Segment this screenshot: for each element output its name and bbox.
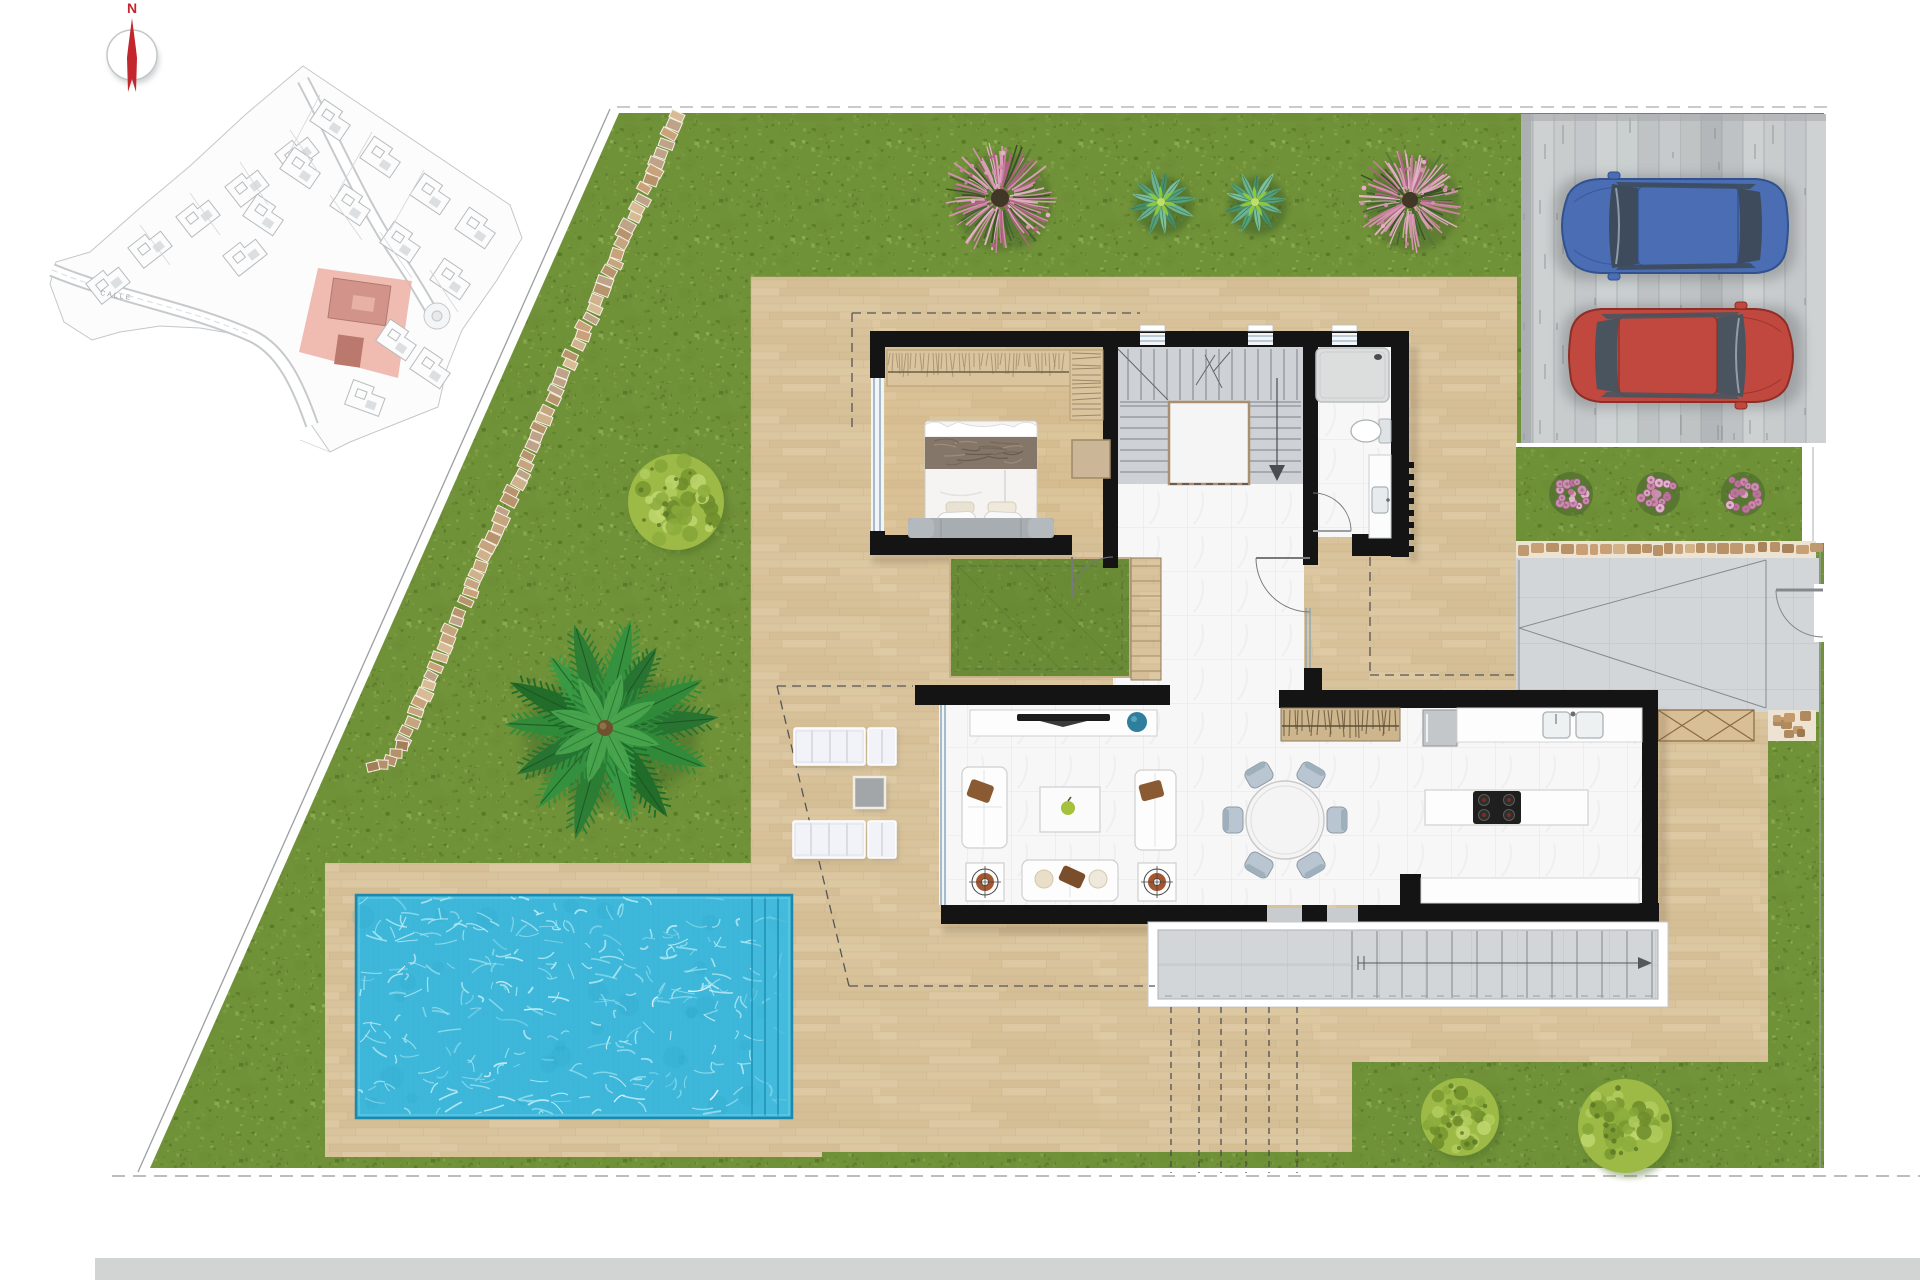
svg-text:N: N [127,0,137,16]
